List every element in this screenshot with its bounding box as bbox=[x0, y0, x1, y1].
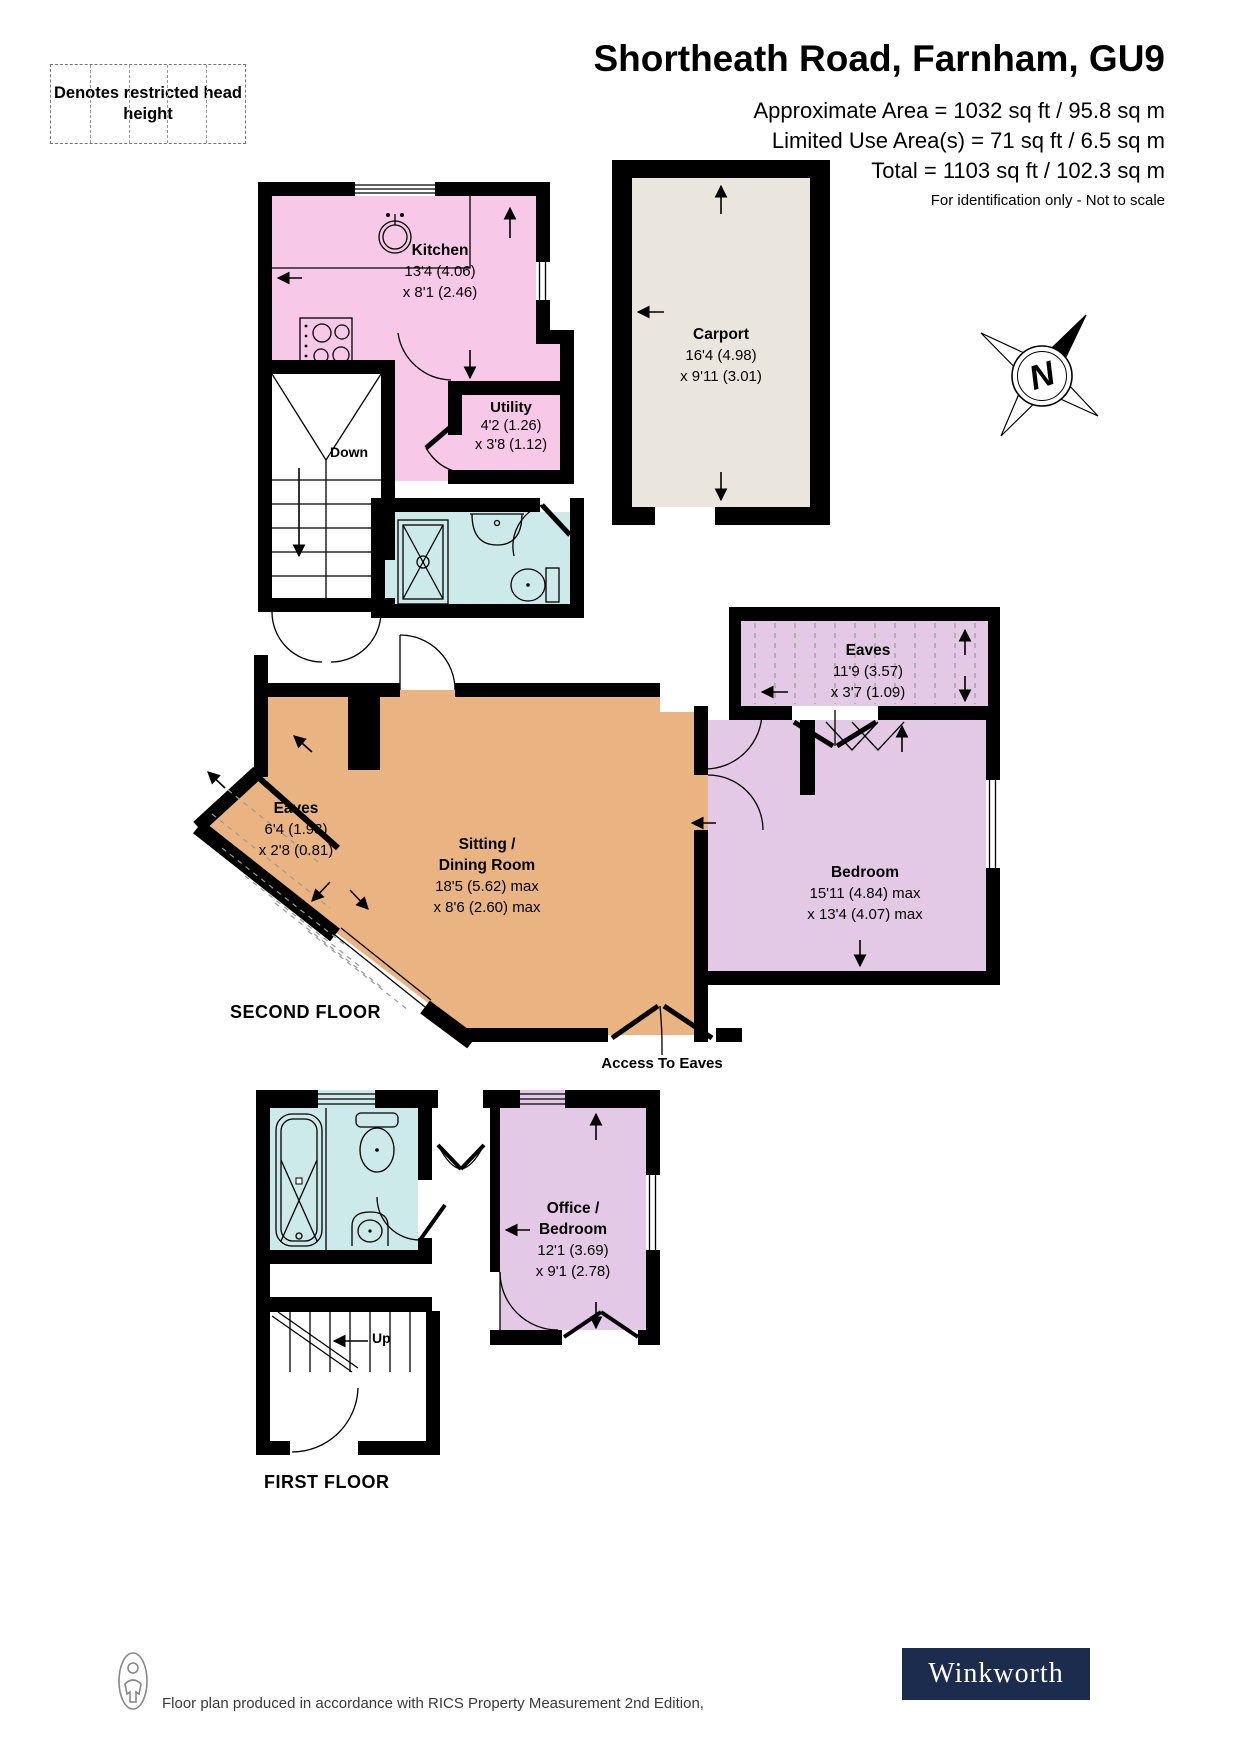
access-to-eaves-label: Access To Eaves bbox=[562, 1055, 762, 1072]
legend-restricted-head-height: Denotes restricted head height bbox=[50, 64, 246, 144]
footer-disclaimer: Floor plan produced in accordance with R… bbox=[162, 1650, 837, 1755]
compass-rose-icon: N bbox=[981, 315, 1098, 436]
first-floor-label: FIRST FLOOR bbox=[264, 1472, 390, 1493]
person-icon bbox=[112, 1650, 154, 1712]
bedroom-label: Bedroom 15'11 (4.84) max x 13'4 (4.07) m… bbox=[765, 862, 965, 925]
second-floor-label: SECOND FLOOR bbox=[230, 1002, 381, 1023]
office-bedroom-label: Office / Bedroom 12'1 (3.69) x 9'1 (2.78… bbox=[483, 1198, 663, 1282]
legend-hatch-line bbox=[129, 65, 130, 143]
kitchen-label: Kitchen 13'4 (4.06) x 8'1 (2.46) bbox=[360, 240, 520, 303]
shower-room bbox=[385, 512, 570, 604]
stairs-up-label: Up bbox=[372, 1330, 391, 1346]
utility-label: Utility 4'2 (1.26) x 3'8 (1.12) bbox=[446, 398, 576, 455]
legend-hatch-line bbox=[167, 65, 168, 143]
scale-disclaimer: For identification only - Not to scale bbox=[931, 192, 1165, 209]
bedroom-room bbox=[708, 720, 986, 971]
footer-line-1: Floor plan produced in accordance with R… bbox=[162, 1693, 837, 1714]
floorplan-page: N bbox=[0, 0, 1241, 1755]
sitting-dining-label: Sitting / Dining Room 18'5 (5.62) max x … bbox=[387, 834, 587, 918]
page-title: Shortheath Road, Farnham, GU9 bbox=[593, 38, 1165, 80]
carport-label: Carport 16'4 (4.98) x 9'11 (3.01) bbox=[641, 324, 801, 387]
legend-hatch-line bbox=[206, 65, 207, 143]
legend-text: Denotes restricted head height bbox=[51, 83, 245, 124]
eaves-right-label: Eaves 11'9 (3.57) x 3'7 (1.09) bbox=[778, 640, 958, 703]
floorplan-drawing: N bbox=[0, 0, 1241, 1755]
legend-hatch-line bbox=[90, 65, 91, 143]
stairs-down-label: Down bbox=[330, 444, 368, 460]
eaves-left-label: Eaves 6'4 (1.93) x 2'8 (0.81) bbox=[226, 798, 366, 861]
approximate-area: Approximate Area = 1032 sq ft / 95.8 sq … bbox=[753, 98, 1165, 124]
bathroom-room bbox=[270, 1108, 418, 1250]
winkworth-logo: Winkworth bbox=[902, 1648, 1090, 1700]
winkworth-logo-text: Winkworth bbox=[928, 1658, 1063, 1690]
limited-use-area: Limited Use Area(s) = 71 sq ft / 6.5 sq … bbox=[772, 128, 1165, 154]
total-area: Total = 1103 sq ft / 102.3 sq m bbox=[871, 158, 1165, 184]
